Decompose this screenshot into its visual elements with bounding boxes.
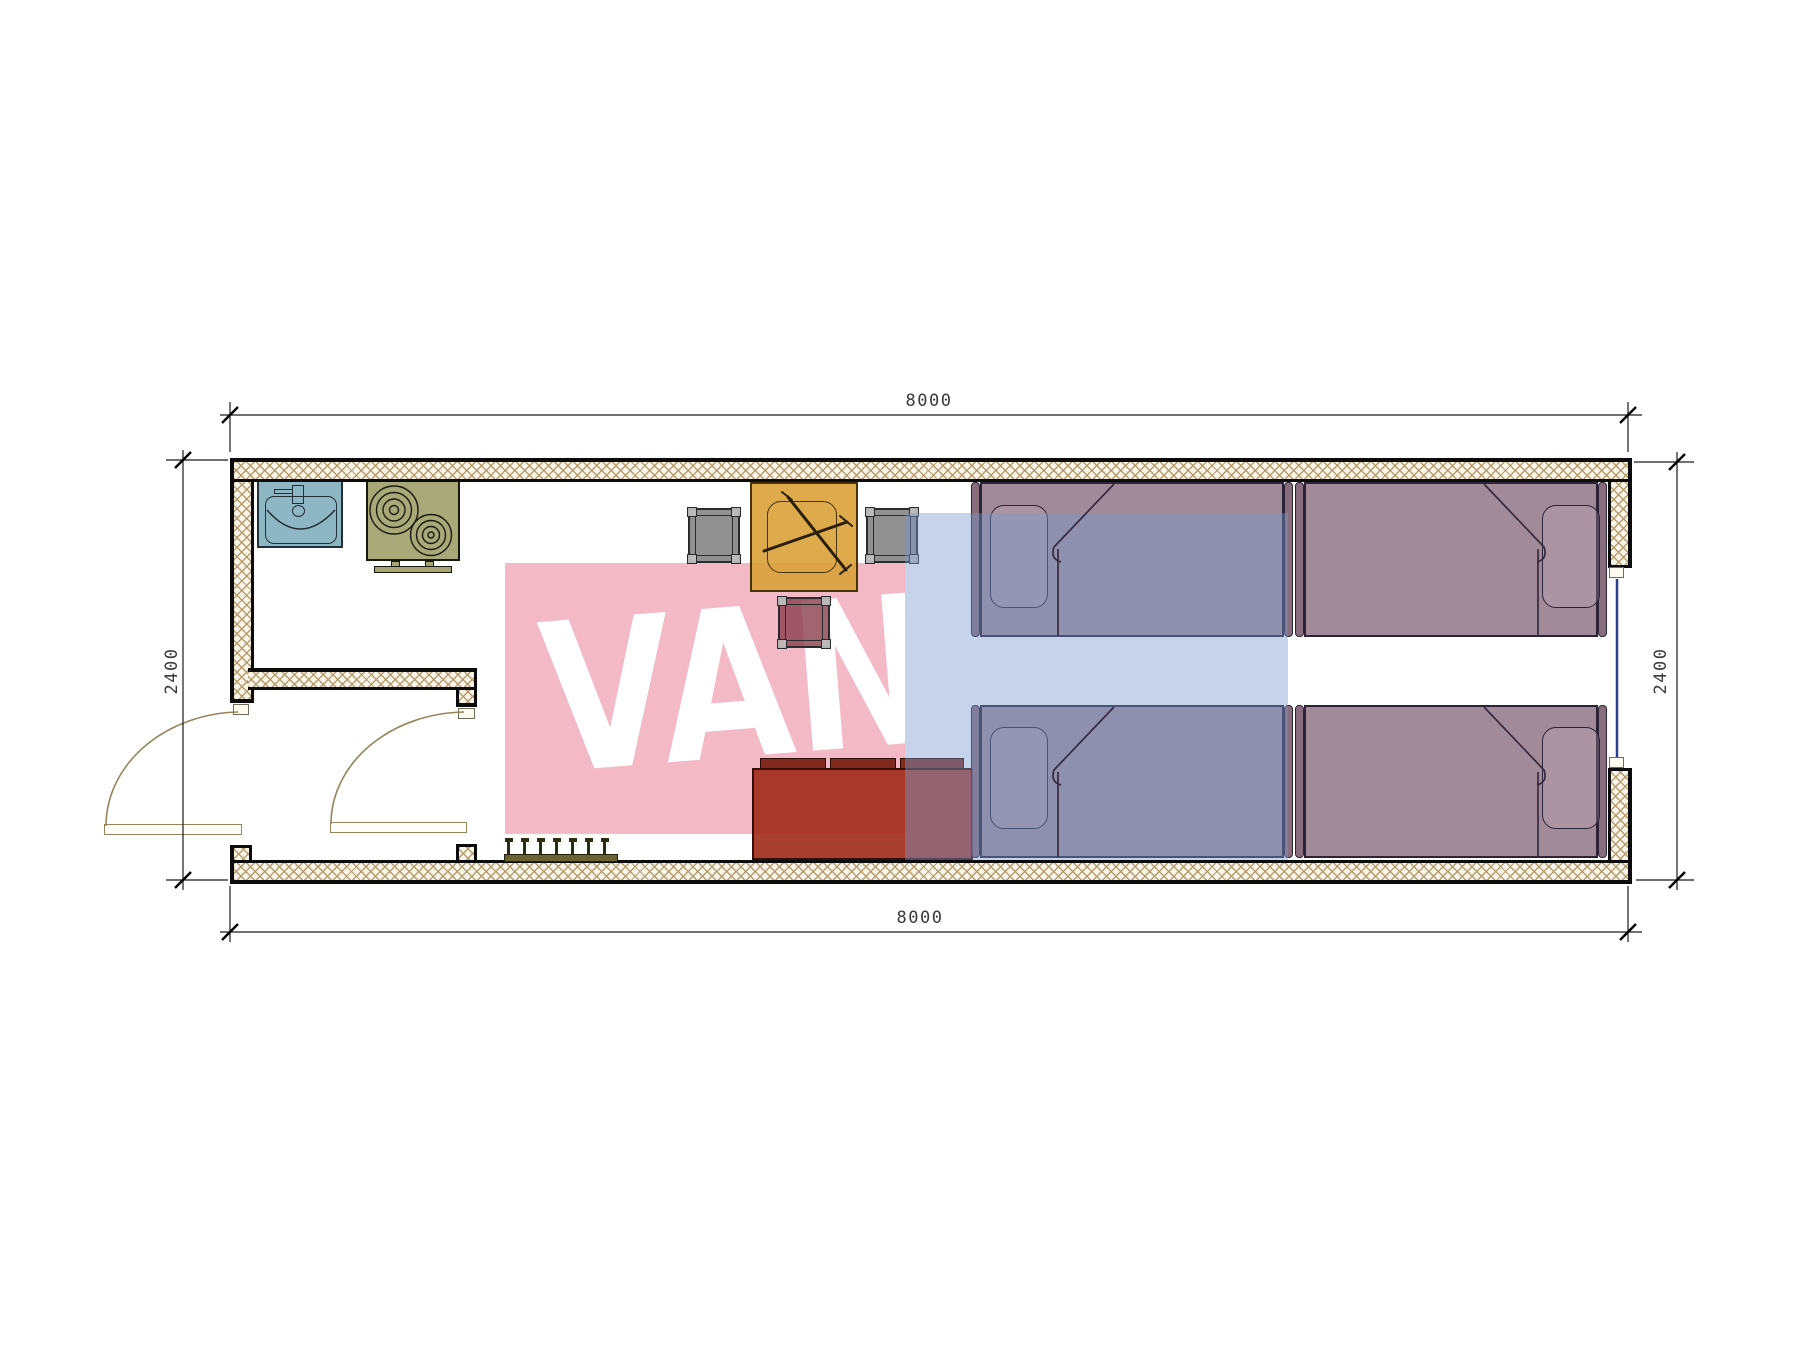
door-swing-arcs	[106, 712, 464, 826]
coat-rack	[504, 854, 618, 862]
chair-post	[777, 596, 787, 606]
dining-table-top	[767, 501, 837, 573]
chair-post	[777, 639, 787, 649]
chair-post	[865, 507, 875, 517]
chair-post	[865, 554, 875, 564]
chair-seat	[695, 515, 733, 556]
wall-corner-block	[230, 845, 252, 860]
two-burner-stove	[366, 480, 460, 561]
chair-seat	[785, 604, 823, 641]
exterior-wall-right-upper	[1608, 482, 1632, 568]
window-jamb	[1609, 567, 1624, 578]
window-jamb	[1609, 757, 1624, 768]
entry-door-leaf	[104, 824, 242, 835]
chair-left	[688, 508, 740, 563]
chair-post	[731, 554, 741, 564]
vestibule-partition-wall	[248, 668, 477, 690]
dimension-top-label: 8000	[869, 392, 989, 410]
dimension-left-label: 2400	[163, 611, 181, 731]
chair-post	[821, 596, 831, 606]
door-jamb-block	[456, 844, 477, 860]
bed-foot-strip	[1295, 705, 1304, 858]
pillow-bed-2	[1542, 505, 1600, 608]
dimension-right-label: 2400	[1652, 611, 1670, 731]
watermark-blue-block	[905, 513, 1288, 860]
faucet-icon	[292, 485, 304, 504]
exterior-wall-right-lower	[1608, 768, 1632, 860]
chair-post	[731, 507, 741, 517]
floor-plan-canvas: VAN DA	[0, 0, 1800, 1350]
exterior-wall-bottom	[230, 860, 1632, 884]
door-jamb	[458, 708, 475, 719]
bed-foot-strip	[1295, 482, 1304, 637]
chair-bottom	[778, 597, 830, 648]
exterior-wall-top	[230, 458, 1632, 482]
chair-post	[687, 507, 697, 517]
door-jamb	[233, 704, 249, 715]
dimension-bottom-label: 8000	[860, 909, 980, 927]
partition-door-stub	[456, 690, 477, 707]
sink-drain	[292, 505, 305, 517]
stove-base	[374, 566, 452, 573]
pillow-bed-4	[1542, 727, 1600, 829]
faucet-pipe	[274, 489, 293, 494]
interior-door-leaf	[330, 822, 467, 833]
chair-post	[687, 554, 697, 564]
chair-post	[821, 639, 831, 649]
